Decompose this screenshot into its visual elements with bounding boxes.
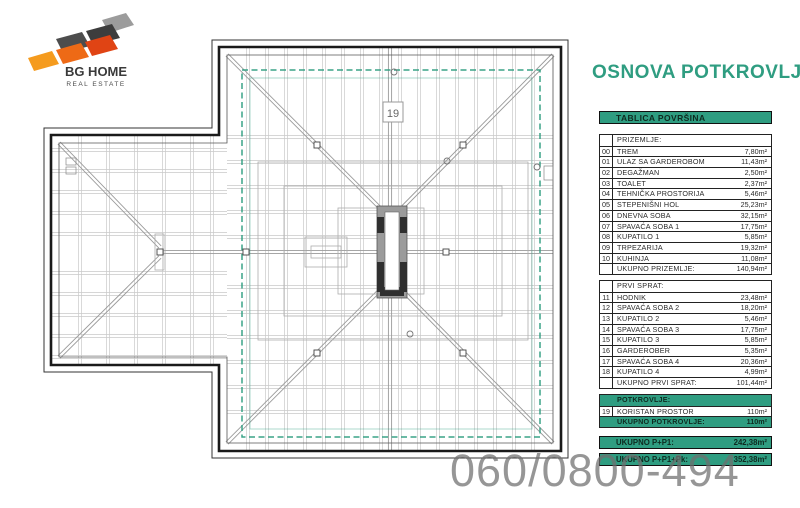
area-table-section: PRVI SPRAT:11HODNIK23,48m²12SPAVAĆA SOBA… — [599, 280, 772, 389]
table-sections: PRIZEMLJE:00TREM7,80m²01ULAZ SA GARDEROB… — [599, 134, 772, 428]
table-row: 02DEGAŽMAN2,50m² — [600, 167, 771, 178]
post-markers — [66, 69, 553, 356]
table-row: 14SPAVAĆA SOBA 317,75m² — [600, 324, 771, 335]
table-row: 09TRPEZARIJA19,32m² — [600, 242, 771, 253]
table-row: POTKROVLJE: — [600, 395, 771, 406]
table-row: 07SPAVAĆA SOBA 117,75m² — [600, 221, 771, 232]
table-row: 08KUPATILO 15,85m² — [600, 231, 771, 242]
room-19-tag: 19 — [383, 102, 403, 122]
table-row: 12SPAVAĆA SOBA 218,20m² — [600, 302, 771, 313]
table-header-bar: TABLICA POVRŠINA — [599, 111, 772, 124]
table-row: 04TEHNIČKA PROSTORIJA5,46m² — [600, 188, 771, 199]
table-row: 15KUPATILO 35,85m² — [600, 334, 771, 345]
table-row: 16GARDEROBER5,35m² — [600, 345, 771, 356]
table-row: 18KUPATILO 44,99m² — [600, 366, 771, 377]
stair-opening — [377, 206, 407, 298]
table-header-label: TABLICA POVRŠINA — [616, 113, 706, 123]
table-row: 01ULAZ SA GARDEROBOM11,43m² — [600, 156, 771, 167]
table-row: 10KUHINJA11,08m² — [600, 253, 771, 264]
area-table-section: PRIZEMLJE:00TREM7,80m²01ULAZ SA GARDEROB… — [599, 134, 772, 275]
table-row: 05STEPENIŠNI HOL25,23m² — [600, 199, 771, 210]
building-outline — [44, 40, 568, 458]
area-table-section: POTKROVLJE:19KORISTAN PROSTOR110m²UKUPNO… — [599, 394, 772, 428]
table-row: PRIZEMLJE: — [600, 135, 771, 146]
table-row: 03TOALET2,37m² — [600, 178, 771, 189]
table-row: 17SPAVAĆA SOBA 420,36m² — [600, 356, 771, 367]
table-row: 13KUPATILO 25,46m² — [600, 313, 771, 324]
room-label: 19 — [387, 108, 399, 120]
watermark-phone: 060/0800-494 — [450, 445, 740, 497]
table-row: UKUPNO PRIZEMLJE:140,94m² — [600, 263, 771, 274]
table-row: 11HODNIK23,48m² — [600, 292, 771, 303]
table-row: UKUPNO POTKROVLJE:110m² — [600, 416, 771, 427]
table-row: 06DNEVNA SOBA32,15m² — [600, 210, 771, 221]
rafter-lines — [51, 47, 554, 451]
table-row: PRVI SPRAT: — [600, 281, 771, 292]
page-title: OSNOVA POTKROVLJA — [592, 62, 792, 84]
table-row: 19KORISTAN PROSTOR110m² — [600, 406, 771, 417]
table-row: 00TREM7,80m² — [600, 146, 771, 157]
page: { "brand": { "name": "BG HOME", "subtitl… — [0, 0, 800, 508]
area-table-panel: TABLICA POVRŠINA PRIZEMLJE:00TREM7,80m²0… — [599, 111, 772, 470]
table-row: UKUPNO PRVI SPRAT:101,44m² — [600, 377, 771, 388]
